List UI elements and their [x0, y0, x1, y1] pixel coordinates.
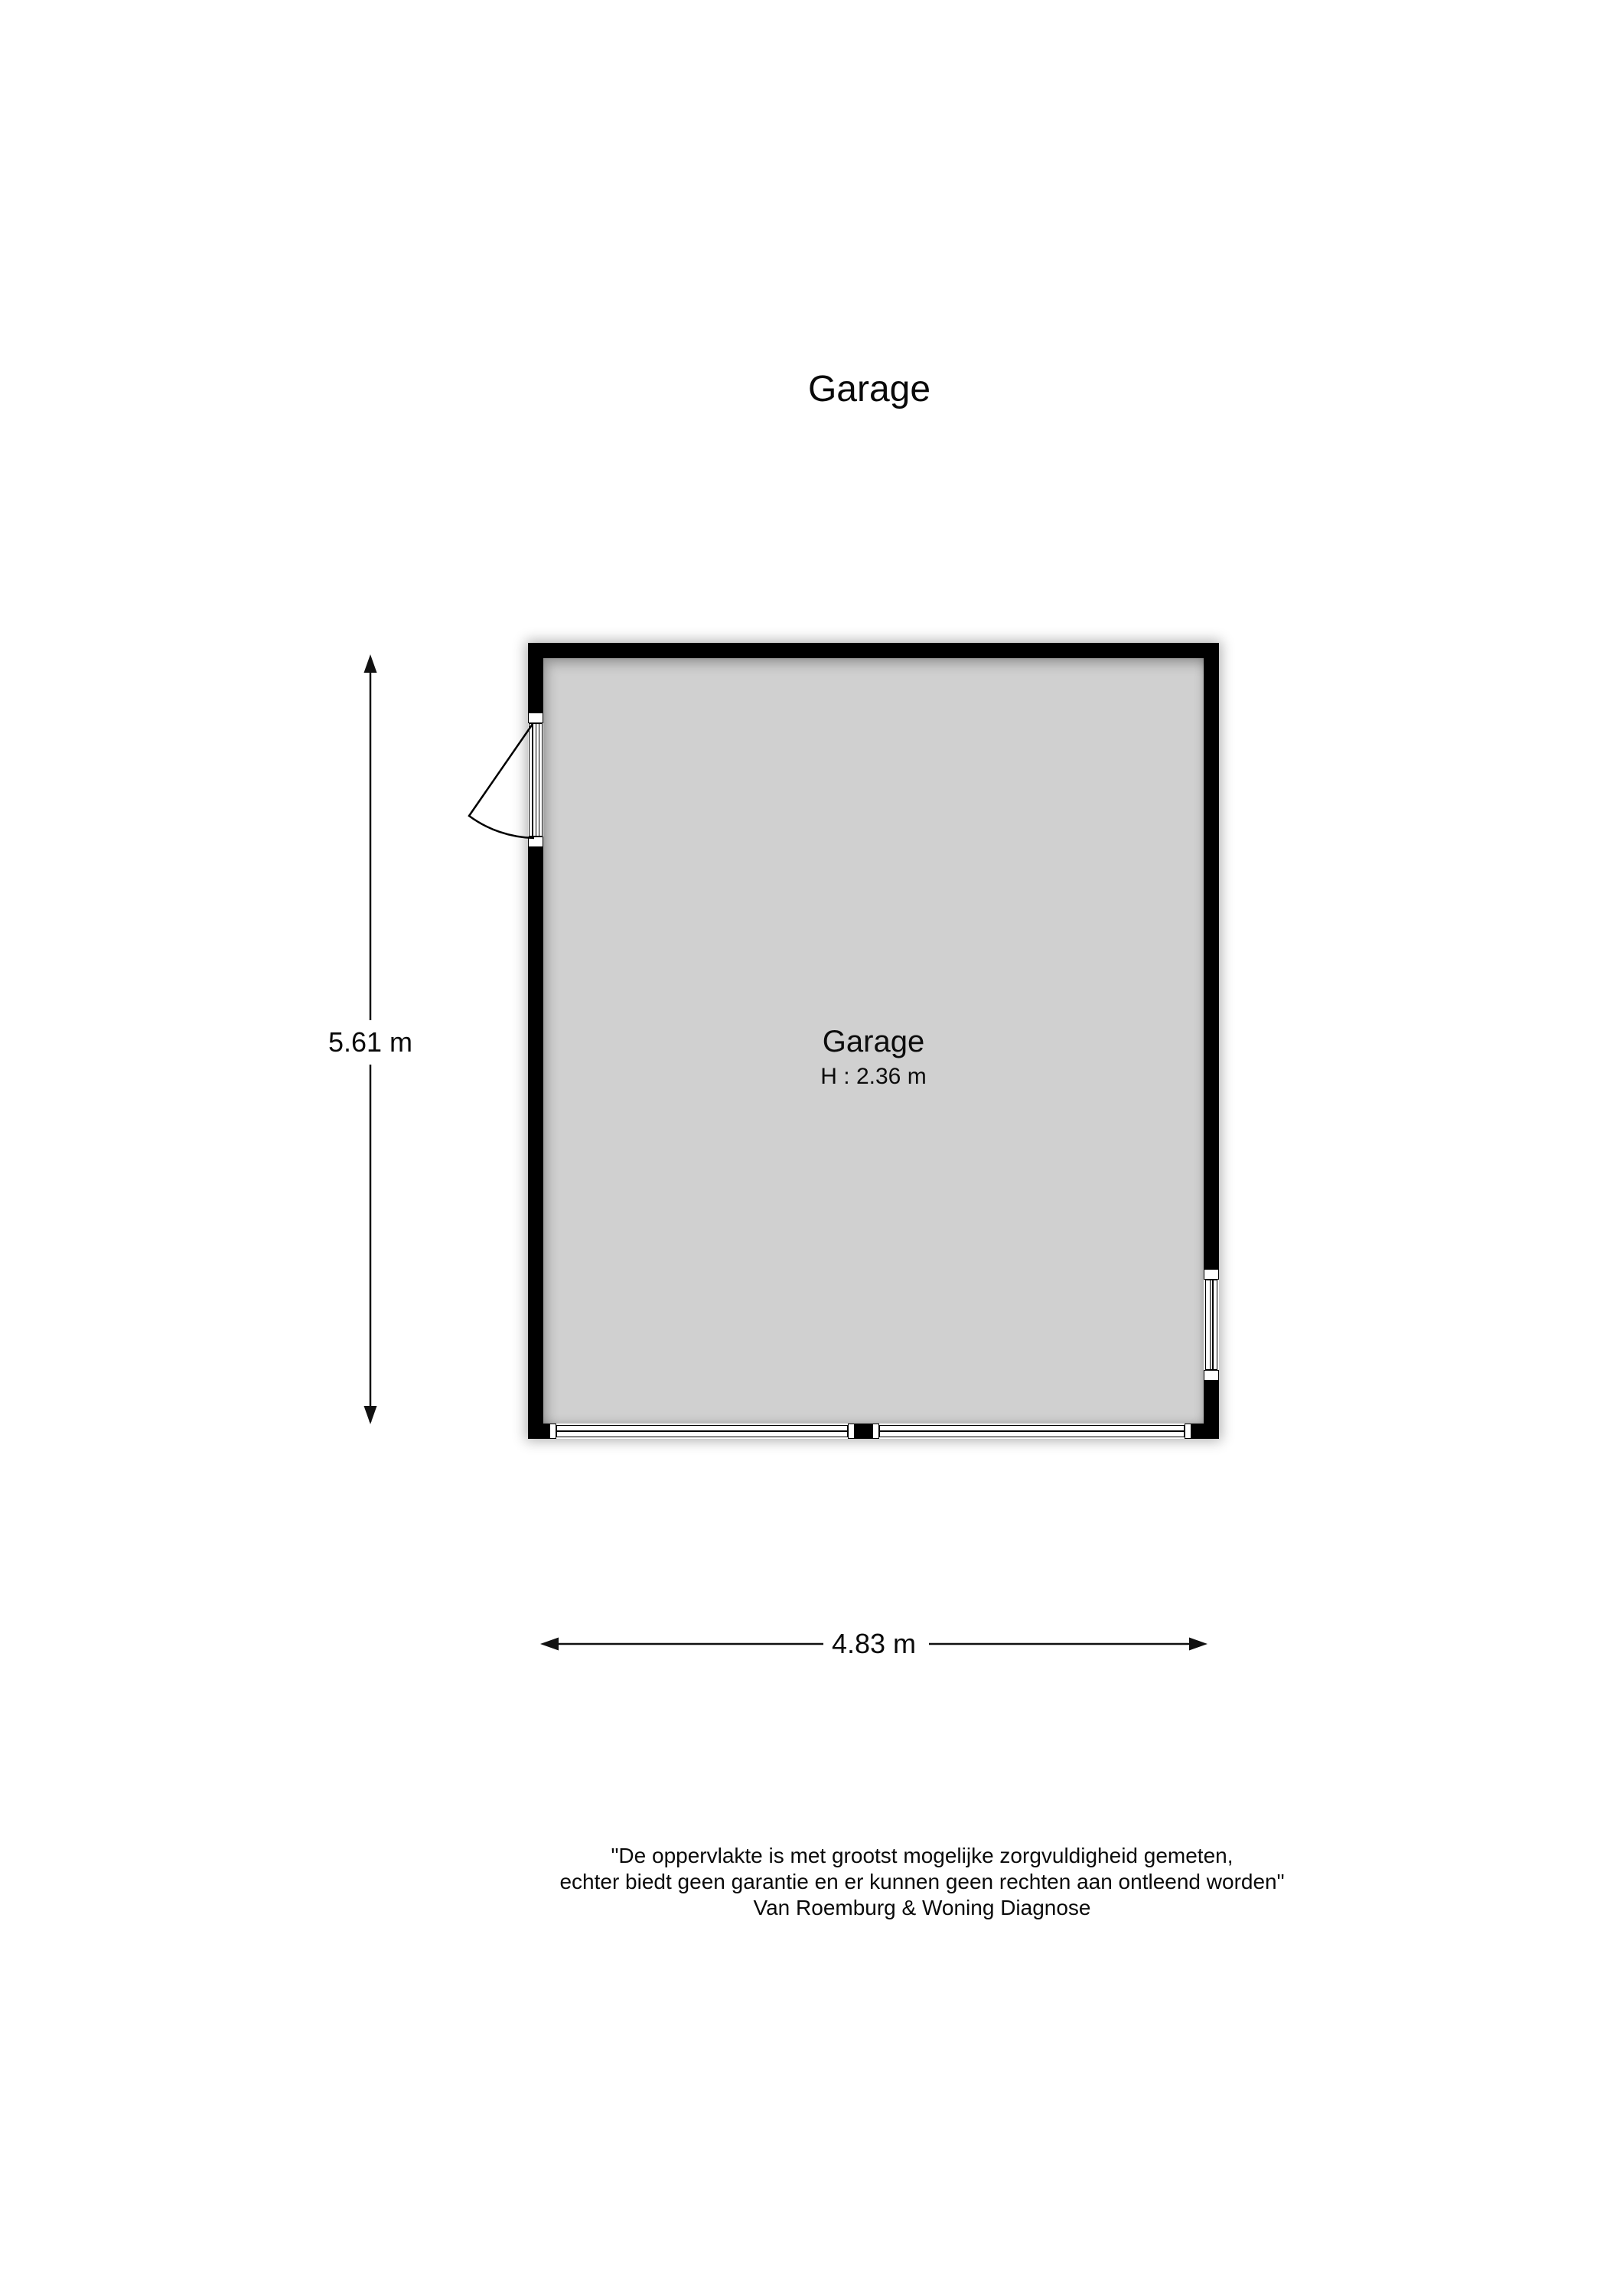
- room-label-group: Garage H : 2.36 m: [543, 1024, 1204, 1091]
- garage-door-opening-right: [872, 1424, 1191, 1439]
- page-title: Garage: [808, 370, 930, 410]
- room-ceiling-height-label: H : 2.36 m: [543, 1062, 1204, 1091]
- arrowhead-left: [540, 1638, 559, 1651]
- room-name-label: Garage: [543, 1024, 1204, 1059]
- entry-door-opening: [528, 713, 543, 847]
- door-jamb-bottom: [528, 837, 543, 847]
- arrowhead-down: [364, 1406, 377, 1424]
- door-swing-arc: [469, 724, 534, 838]
- garage-door-panel-right: [879, 1425, 1185, 1437]
- disclaimer-line-2: echter biedt geen garantie en er kunnen …: [559, 1869, 1284, 1895]
- width-dimension-label: 4.83 m: [832, 1630, 916, 1658]
- door-leaf-line: [532, 724, 533, 836]
- garage-door-jamb: [1185, 1424, 1191, 1439]
- garage-door-jamb: [872, 1424, 879, 1439]
- height-dimension-label: 5.61 m: [328, 1029, 412, 1056]
- disclaimer: "De oppervlakte is met grootst mogelijke…: [559, 1843, 1284, 1921]
- door-jamb-top: [528, 713, 543, 723]
- window-jamb-bottom: [1204, 1370, 1219, 1381]
- garage-door-jamb: [848, 1424, 855, 1439]
- arrowhead-right: [1189, 1638, 1207, 1651]
- disclaimer-line-1: "De oppervlakte is met grootst mogelijke…: [559, 1843, 1284, 1869]
- garage-floorplan: Garage H : 2.36 m: [528, 643, 1219, 1439]
- arrowhead-up: [364, 654, 377, 673]
- room-floor: Garage H : 2.36 m: [543, 658, 1204, 1424]
- entry-door-leaf: [529, 723, 543, 837]
- disclaimer-line-3: Van Roemburg & Woning Diagnose: [559, 1895, 1284, 1921]
- garage-door-panel-left: [556, 1425, 848, 1437]
- window-glass: [1205, 1280, 1217, 1370]
- door-leaf-line: [536, 724, 537, 836]
- garage-door-opening-left: [549, 1424, 855, 1439]
- window-jamb-top: [1204, 1269, 1219, 1280]
- garage-door-jamb: [549, 1424, 556, 1439]
- window-opening: [1204, 1269, 1219, 1381]
- door-leaf-line: [539, 724, 540, 836]
